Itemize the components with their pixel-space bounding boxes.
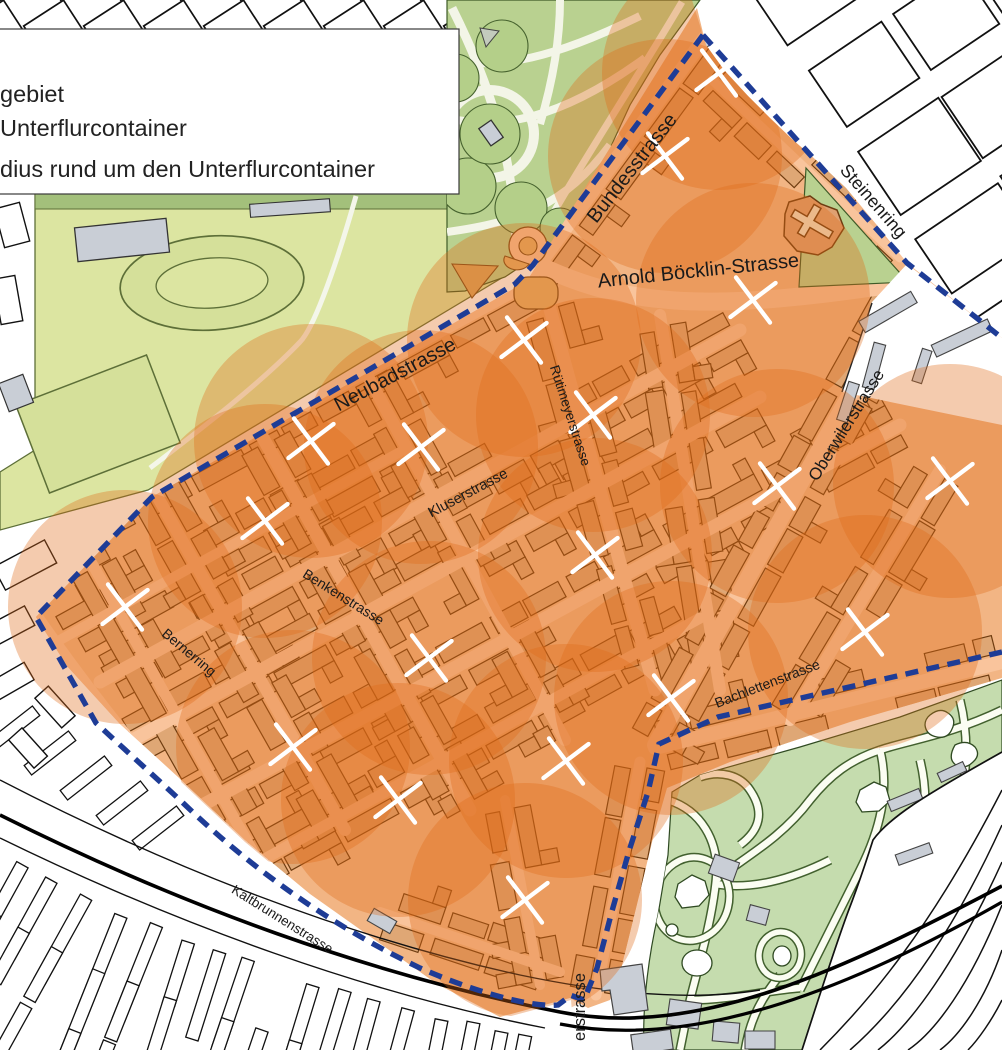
svg-text:gebiet: gebiet bbox=[0, 81, 64, 107]
svg-text:dius rund um den Unterflurcont: dius rund um den Unterflurcontainer bbox=[0, 156, 375, 182]
svg-text:erstrasse: erstrasse bbox=[571, 973, 589, 1041]
svg-text:Unterflurcontainer: Unterflurcontainer bbox=[0, 115, 187, 141]
